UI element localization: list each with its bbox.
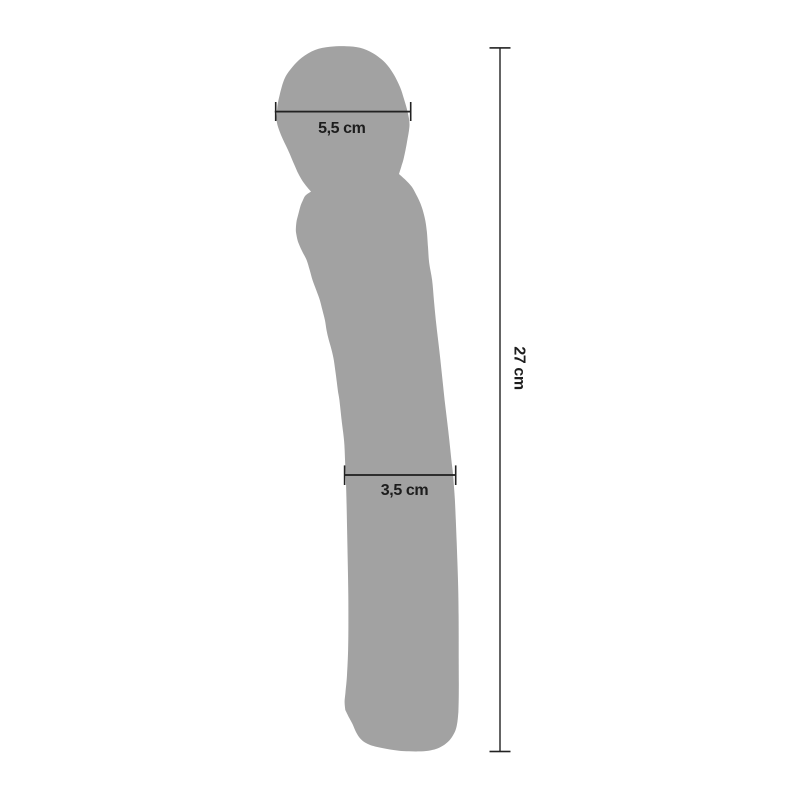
- svg-text:5,5 cm: 5,5 cm: [318, 120, 366, 137]
- svg-text:27 cm: 27 cm: [511, 346, 528, 390]
- svg-text:3,5 cm: 3,5 cm: [381, 482, 429, 499]
